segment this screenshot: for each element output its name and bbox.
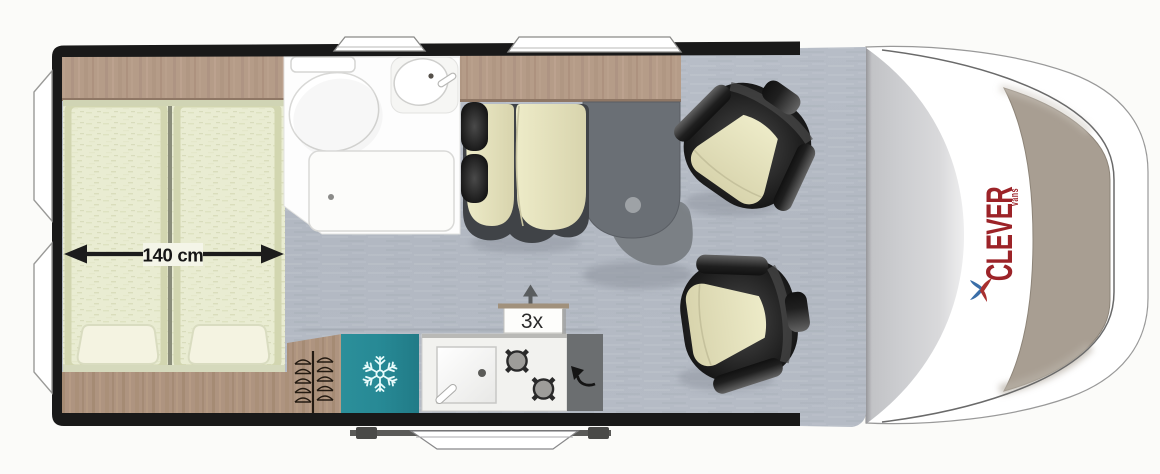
svg-text:140 cm: 140 cm — [143, 245, 204, 266]
svg-text:3x: 3x — [521, 310, 544, 333]
svg-text:vans: vans — [1009, 188, 1021, 206]
